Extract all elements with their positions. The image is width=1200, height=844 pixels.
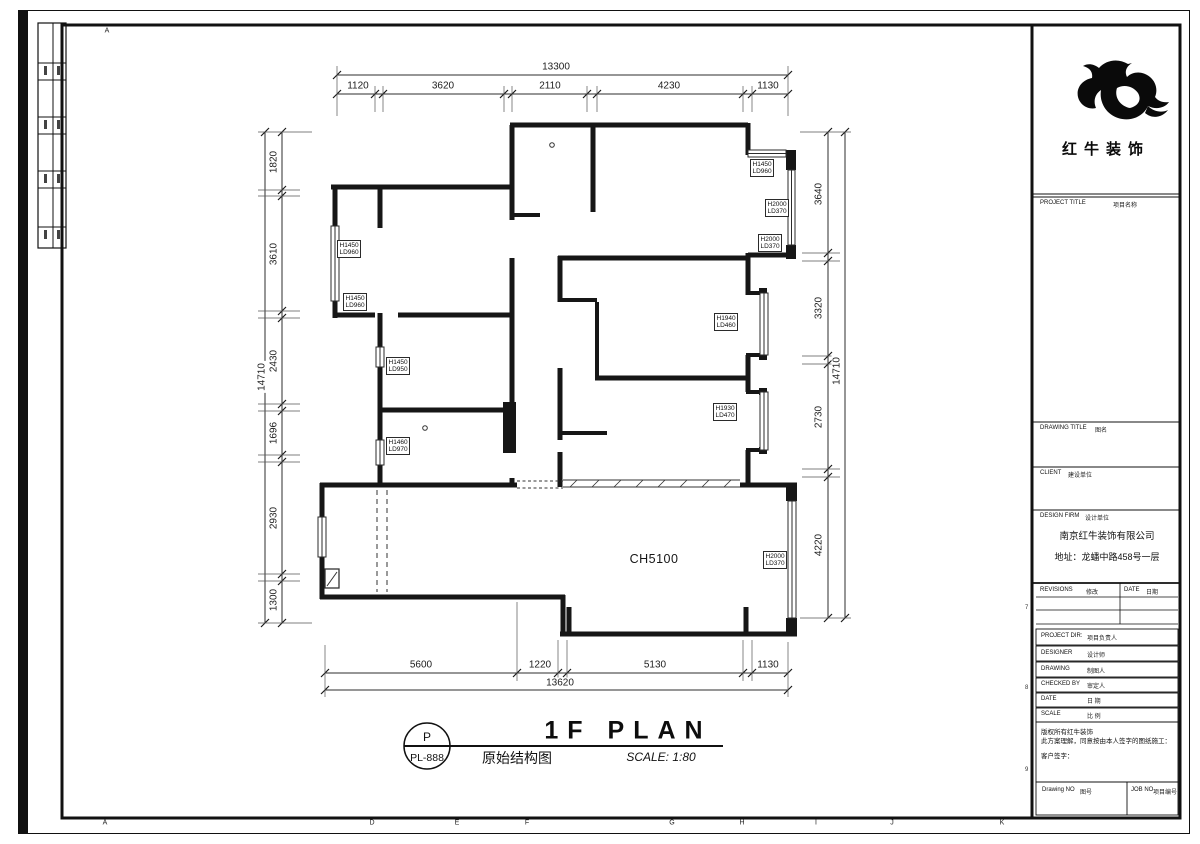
dim-top-segment: 2110 — [539, 81, 561, 92]
window-label-h: H1450 — [753, 161, 772, 169]
grid-letter: H — [739, 820, 744, 827]
dim-left-segment: 1696 — [269, 422, 280, 444]
dim-bottom-total: 13620 — [544, 678, 576, 689]
sheet-frame — [18, 10, 1190, 834]
grid-letter: J — [890, 820, 894, 827]
dim-right-segment: 3640 — [814, 183, 825, 205]
drawing-title-cn: 原始结构图 — [482, 748, 552, 768]
tb-drawing-no-cn: 图号 — [1080, 787, 1092, 796]
tb-row-en: SCALE — [1041, 711, 1061, 717]
tb-drawing-title-cn: 图名 — [1095, 425, 1107, 434]
company-logo-text: 红牛装饰 — [1062, 138, 1150, 159]
floor-plan-windows — [318, 150, 796, 618]
dim-top-segment: 1120 — [347, 81, 369, 92]
window-label: H2000LD370 — [763, 551, 787, 569]
window-label: H1460LD970 — [386, 437, 410, 455]
tb-row-en: PROJECT DIR: — [1041, 633, 1083, 639]
window-label: H2000LD370 — [758, 234, 782, 252]
grid-number: 8 — [1025, 685, 1028, 691]
dim-left-segment: 1820 — [269, 151, 280, 173]
tb-client-en: CLIENT — [1040, 470, 1061, 476]
dim-bottom-segment: 5130 — [644, 660, 666, 671]
window-label-h: H1450 — [340, 242, 359, 250]
tb-row-cn: 设计师 — [1087, 650, 1105, 659]
tb-row-cn: 制图人 — [1087, 666, 1105, 675]
tb-project-title-en: PROJECT TITLE — [1040, 200, 1086, 206]
window-label-ld: LD970 — [389, 446, 408, 454]
tb-drawing-no-en: Drawing NO — [1042, 787, 1075, 793]
dim-right-total: 14710 — [832, 355, 843, 387]
tb-row-cn: 日 期 — [1087, 696, 1101, 705]
dim-bottom-segment: 5600 — [410, 660, 432, 671]
tb-company-name: 南京红牛装饰有限公司 — [1059, 528, 1154, 542]
tb-client-cn: 建设单位 — [1068, 470, 1092, 479]
tb-date-col-cn: 日期 — [1146, 587, 1158, 596]
window-label-h: H1930 — [716, 405, 735, 413]
window-label: H1940LD460 — [714, 313, 738, 331]
window-label-h: H2000 — [761, 236, 780, 244]
dim-right-segment: 4220 — [814, 534, 825, 556]
drawing-scale: SCALE: 1:80 — [626, 750, 695, 764]
tb-revisions-cn: 修改 — [1086, 587, 1098, 596]
dim-left-segment: 1300 — [269, 589, 280, 611]
window-label-ld: LD960 — [340, 249, 359, 257]
grid-letter: G — [669, 820, 674, 827]
dim-top-segment: 1130 — [757, 81, 779, 92]
sheet-code: PL-888 — [410, 752, 444, 764]
dim-bottom-segment: 1130 — [757, 660, 779, 671]
tb-row-cn: 项目负责人 — [1087, 633, 1117, 642]
tb-row-en: DESIGNER — [1041, 650, 1072, 656]
window-label-ld: LD370 — [761, 243, 780, 251]
ceiling-dot — [423, 426, 428, 431]
window-label: H1450LD960 — [343, 293, 367, 311]
window-label-ld: LD960 — [346, 302, 365, 310]
tb-client-signature: 客户签字： — [1041, 750, 1074, 760]
window-label: H1450LD950 — [386, 357, 410, 375]
grid-number: 7 — [1025, 605, 1028, 611]
grid-letter: D — [369, 820, 374, 827]
window-label: H1930LD470 — [713, 403, 737, 421]
window-label-h: H2000 — [766, 553, 785, 561]
window-label: H1450LD960 — [750, 159, 774, 177]
tb-revisions-en: REVISIONS — [1040, 587, 1073, 593]
ceiling-dot — [550, 143, 555, 148]
window-label: H1450LD960 — [337, 240, 361, 258]
window-label-h: H2000 — [768, 201, 787, 209]
grid-letter: A — [103, 820, 108, 827]
window-label-h: H1450 — [346, 295, 365, 303]
tb-row-en: CHECKED BY — [1041, 681, 1080, 687]
grid-letter: I — [815, 820, 817, 827]
tb-project-title-cn: 项目名称 — [1113, 200, 1137, 209]
tb-row-cn: 审定人 — [1087, 681, 1105, 690]
dim-right-segment: 3320 — [814, 297, 825, 319]
drawing-sheet: 13300 1120 3620 2110 4230 1130 5600 1220… — [0, 0, 1200, 844]
dim-left-segment: 3610 — [269, 243, 280, 265]
dim-right-segment: 2730 — [814, 406, 825, 428]
tb-design-firm-en: DESIGN FIRM — [1040, 513, 1079, 519]
window-label-ld: LD370 — [766, 560, 785, 568]
window-label-ld: LD460 — [717, 322, 736, 330]
tb-company-address: 地址：龙蟠中路458号一层 — [1054, 550, 1159, 563]
tb-job-no-en: JOB NO — [1131, 787, 1153, 793]
dim-top-segment: 4230 — [658, 81, 680, 92]
grid-letter: F — [525, 820, 529, 827]
window-label-h: H1460 — [389, 439, 408, 447]
drawing-title-en: 1F PLAN — [544, 717, 711, 746]
dim-left-segment: 2930 — [269, 507, 280, 529]
tb-row-en: DRAWING — [1041, 666, 1070, 672]
fold-marker-text — [44, 66, 60, 239]
window-label-h: H1940 — [717, 315, 736, 323]
dim-top-total: 13300 — [542, 62, 570, 73]
tb-design-firm-cn: 设计单位 — [1085, 513, 1109, 522]
window-label-h: H1450 — [389, 359, 408, 367]
tb-row-cn: 比 例 — [1087, 711, 1101, 720]
dim-bottom-segment: 1220 — [529, 660, 551, 671]
dim-left-segment: 2430 — [269, 350, 280, 372]
floor-plan-walls — [320, 123, 797, 636]
tb-row-en: DATE — [1041, 696, 1057, 702]
dim-top-segment: 3620 — [432, 81, 454, 92]
grid-letter: K — [1000, 820, 1005, 827]
tb-date-col-en: DATE — [1124, 587, 1140, 593]
ceiling-height-label: CH5100 — [630, 552, 679, 566]
tb-copyright-line2: 此方案理解，同意按由本人签字的图纸施工： — [1041, 735, 1171, 745]
grid-number: 9 — [1025, 767, 1028, 773]
window-label-ld: LD950 — [389, 366, 408, 374]
grid-letter-top: A — [105, 28, 110, 35]
tb-job-no-cn: 项目编号 — [1153, 787, 1177, 796]
title-circle-letter: P — [423, 730, 431, 744]
title-block-lines — [1033, 194, 1180, 815]
window-label-ld: LD370 — [768, 208, 787, 216]
tb-drawing-title-en: DRAWING TITLE — [1040, 425, 1087, 431]
dim-left-total: 14710 — [257, 361, 268, 393]
window-label-ld: LD470 — [716, 412, 735, 420]
company-logo-icon — [1078, 61, 1169, 120]
window-label: H2000LD370 — [765, 199, 789, 217]
grid-letter: E — [455, 820, 460, 827]
window-label-ld: LD960 — [753, 168, 772, 176]
